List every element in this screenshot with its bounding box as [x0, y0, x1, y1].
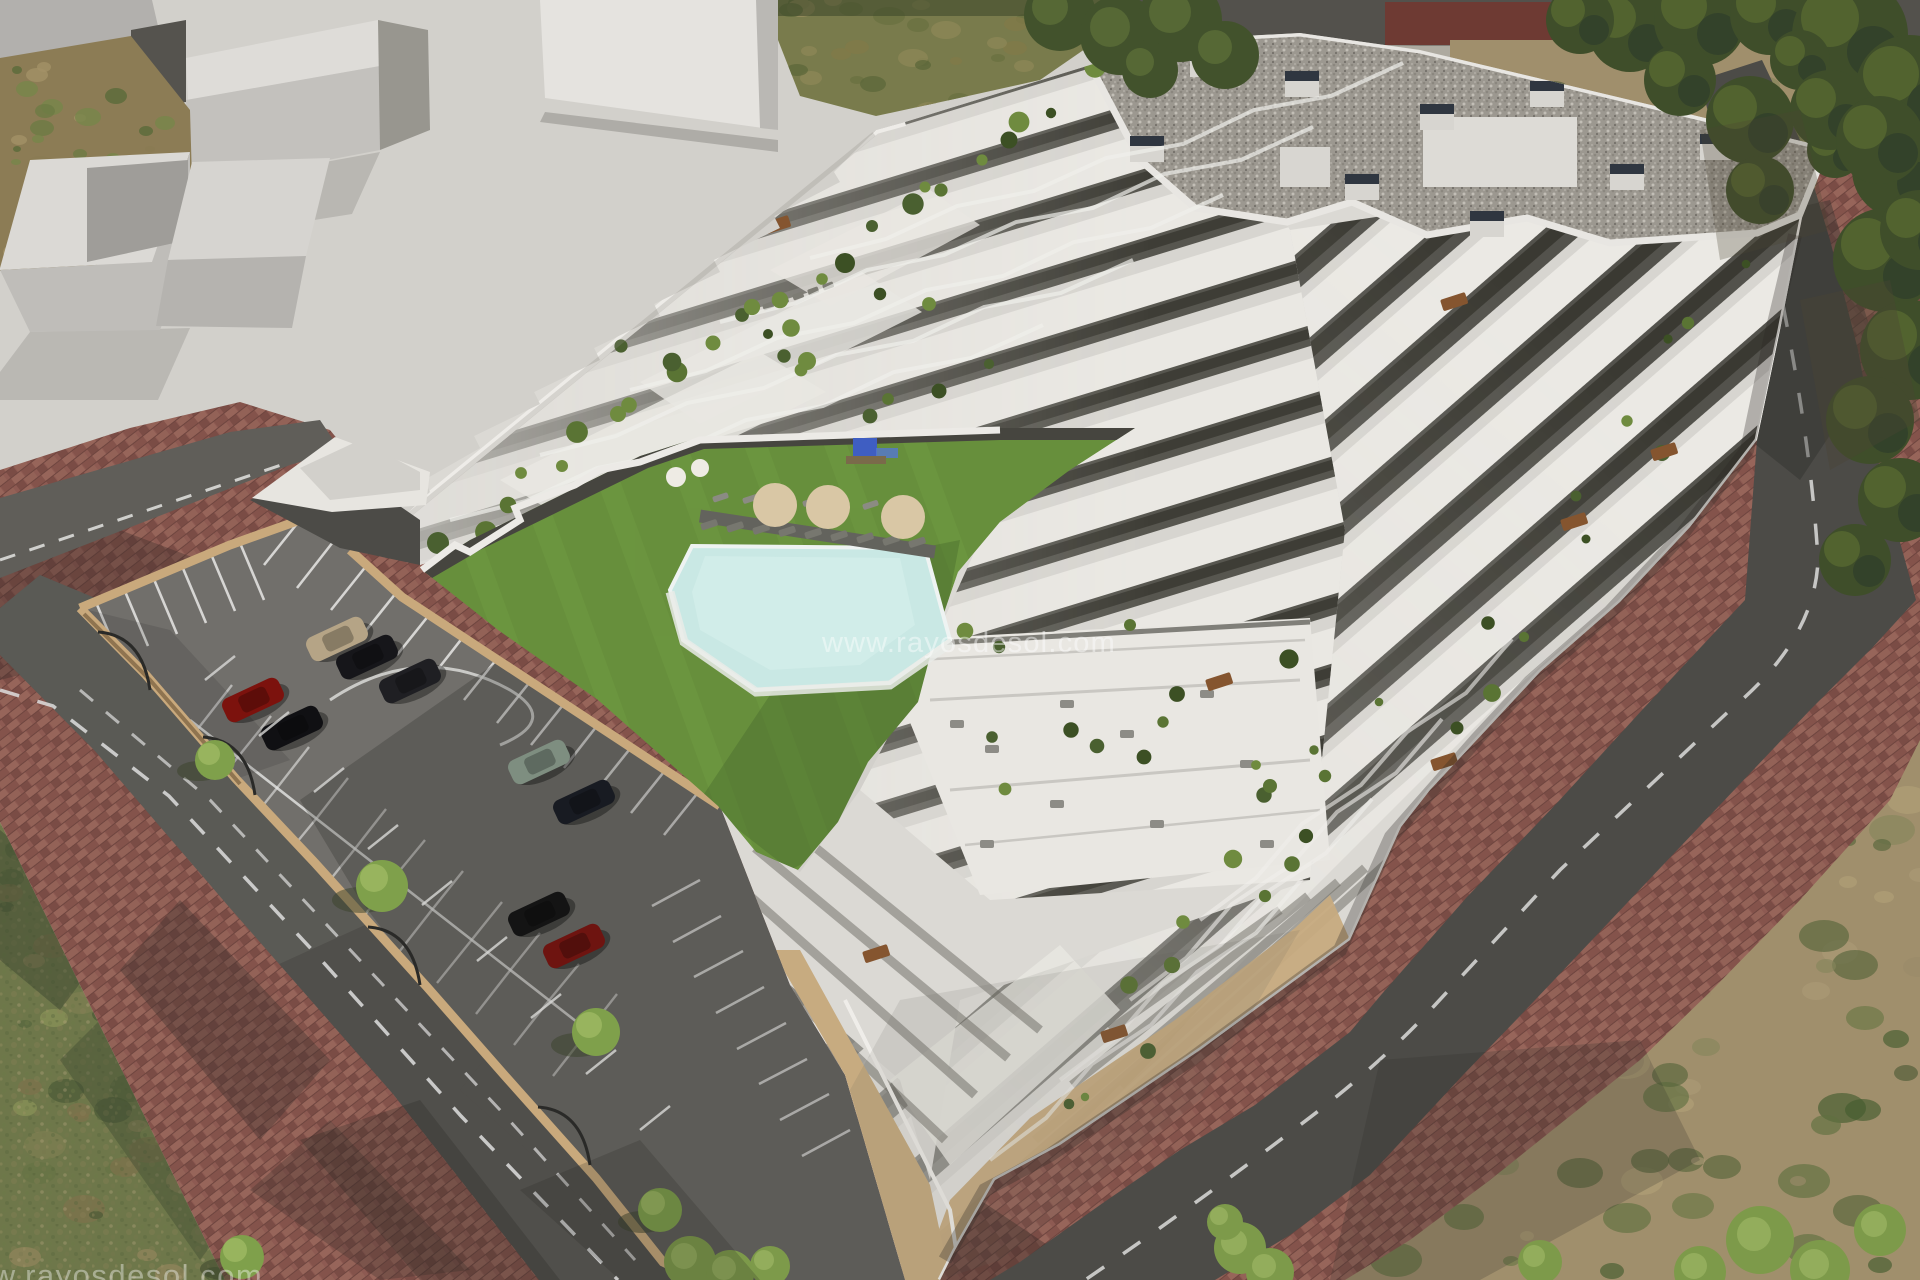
svg-text:www.rayosdesol.com: www.rayosdesol.com	[0, 1258, 263, 1280]
svg-text:www.rayosdesol.com: www.rayosdesol.com	[821, 627, 1116, 659]
